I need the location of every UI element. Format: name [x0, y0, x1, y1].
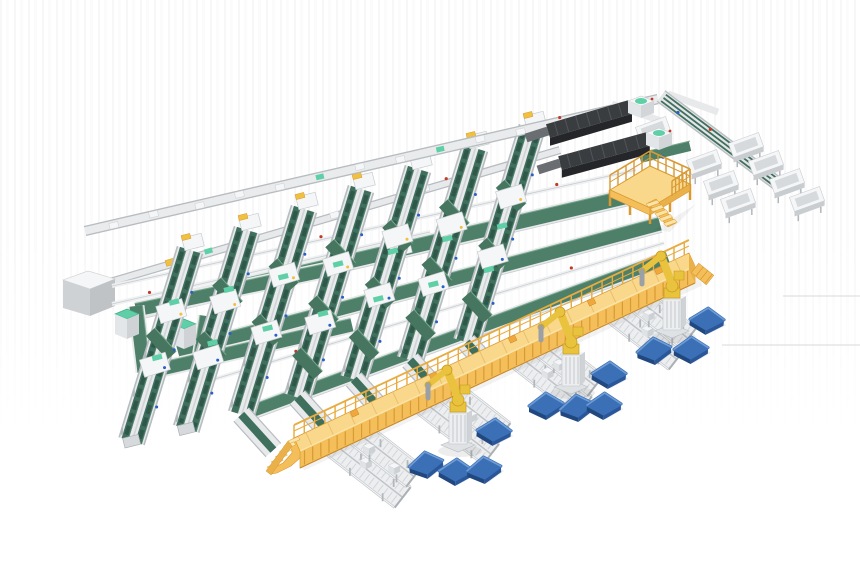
pallet: [591, 361, 630, 391]
facility-render: Automated parcel sorting and robotic pal…: [0, 0, 860, 580]
induction-station: [238, 213, 261, 230]
pallet: [689, 306, 729, 337]
pallet: [586, 392, 624, 421]
pallet: [466, 456, 504, 485]
induction-station: [181, 233, 204, 250]
induction-station: [295, 192, 318, 209]
chute-bin: [789, 187, 824, 222]
induction-station: [352, 172, 375, 189]
isometric-scene: Automated parcel sorting and robotic pal…: [0, 0, 860, 580]
electrical-cabinet: [63, 271, 115, 316]
control-cabinet: [115, 309, 139, 339]
render-artifacts: [722, 296, 860, 345]
